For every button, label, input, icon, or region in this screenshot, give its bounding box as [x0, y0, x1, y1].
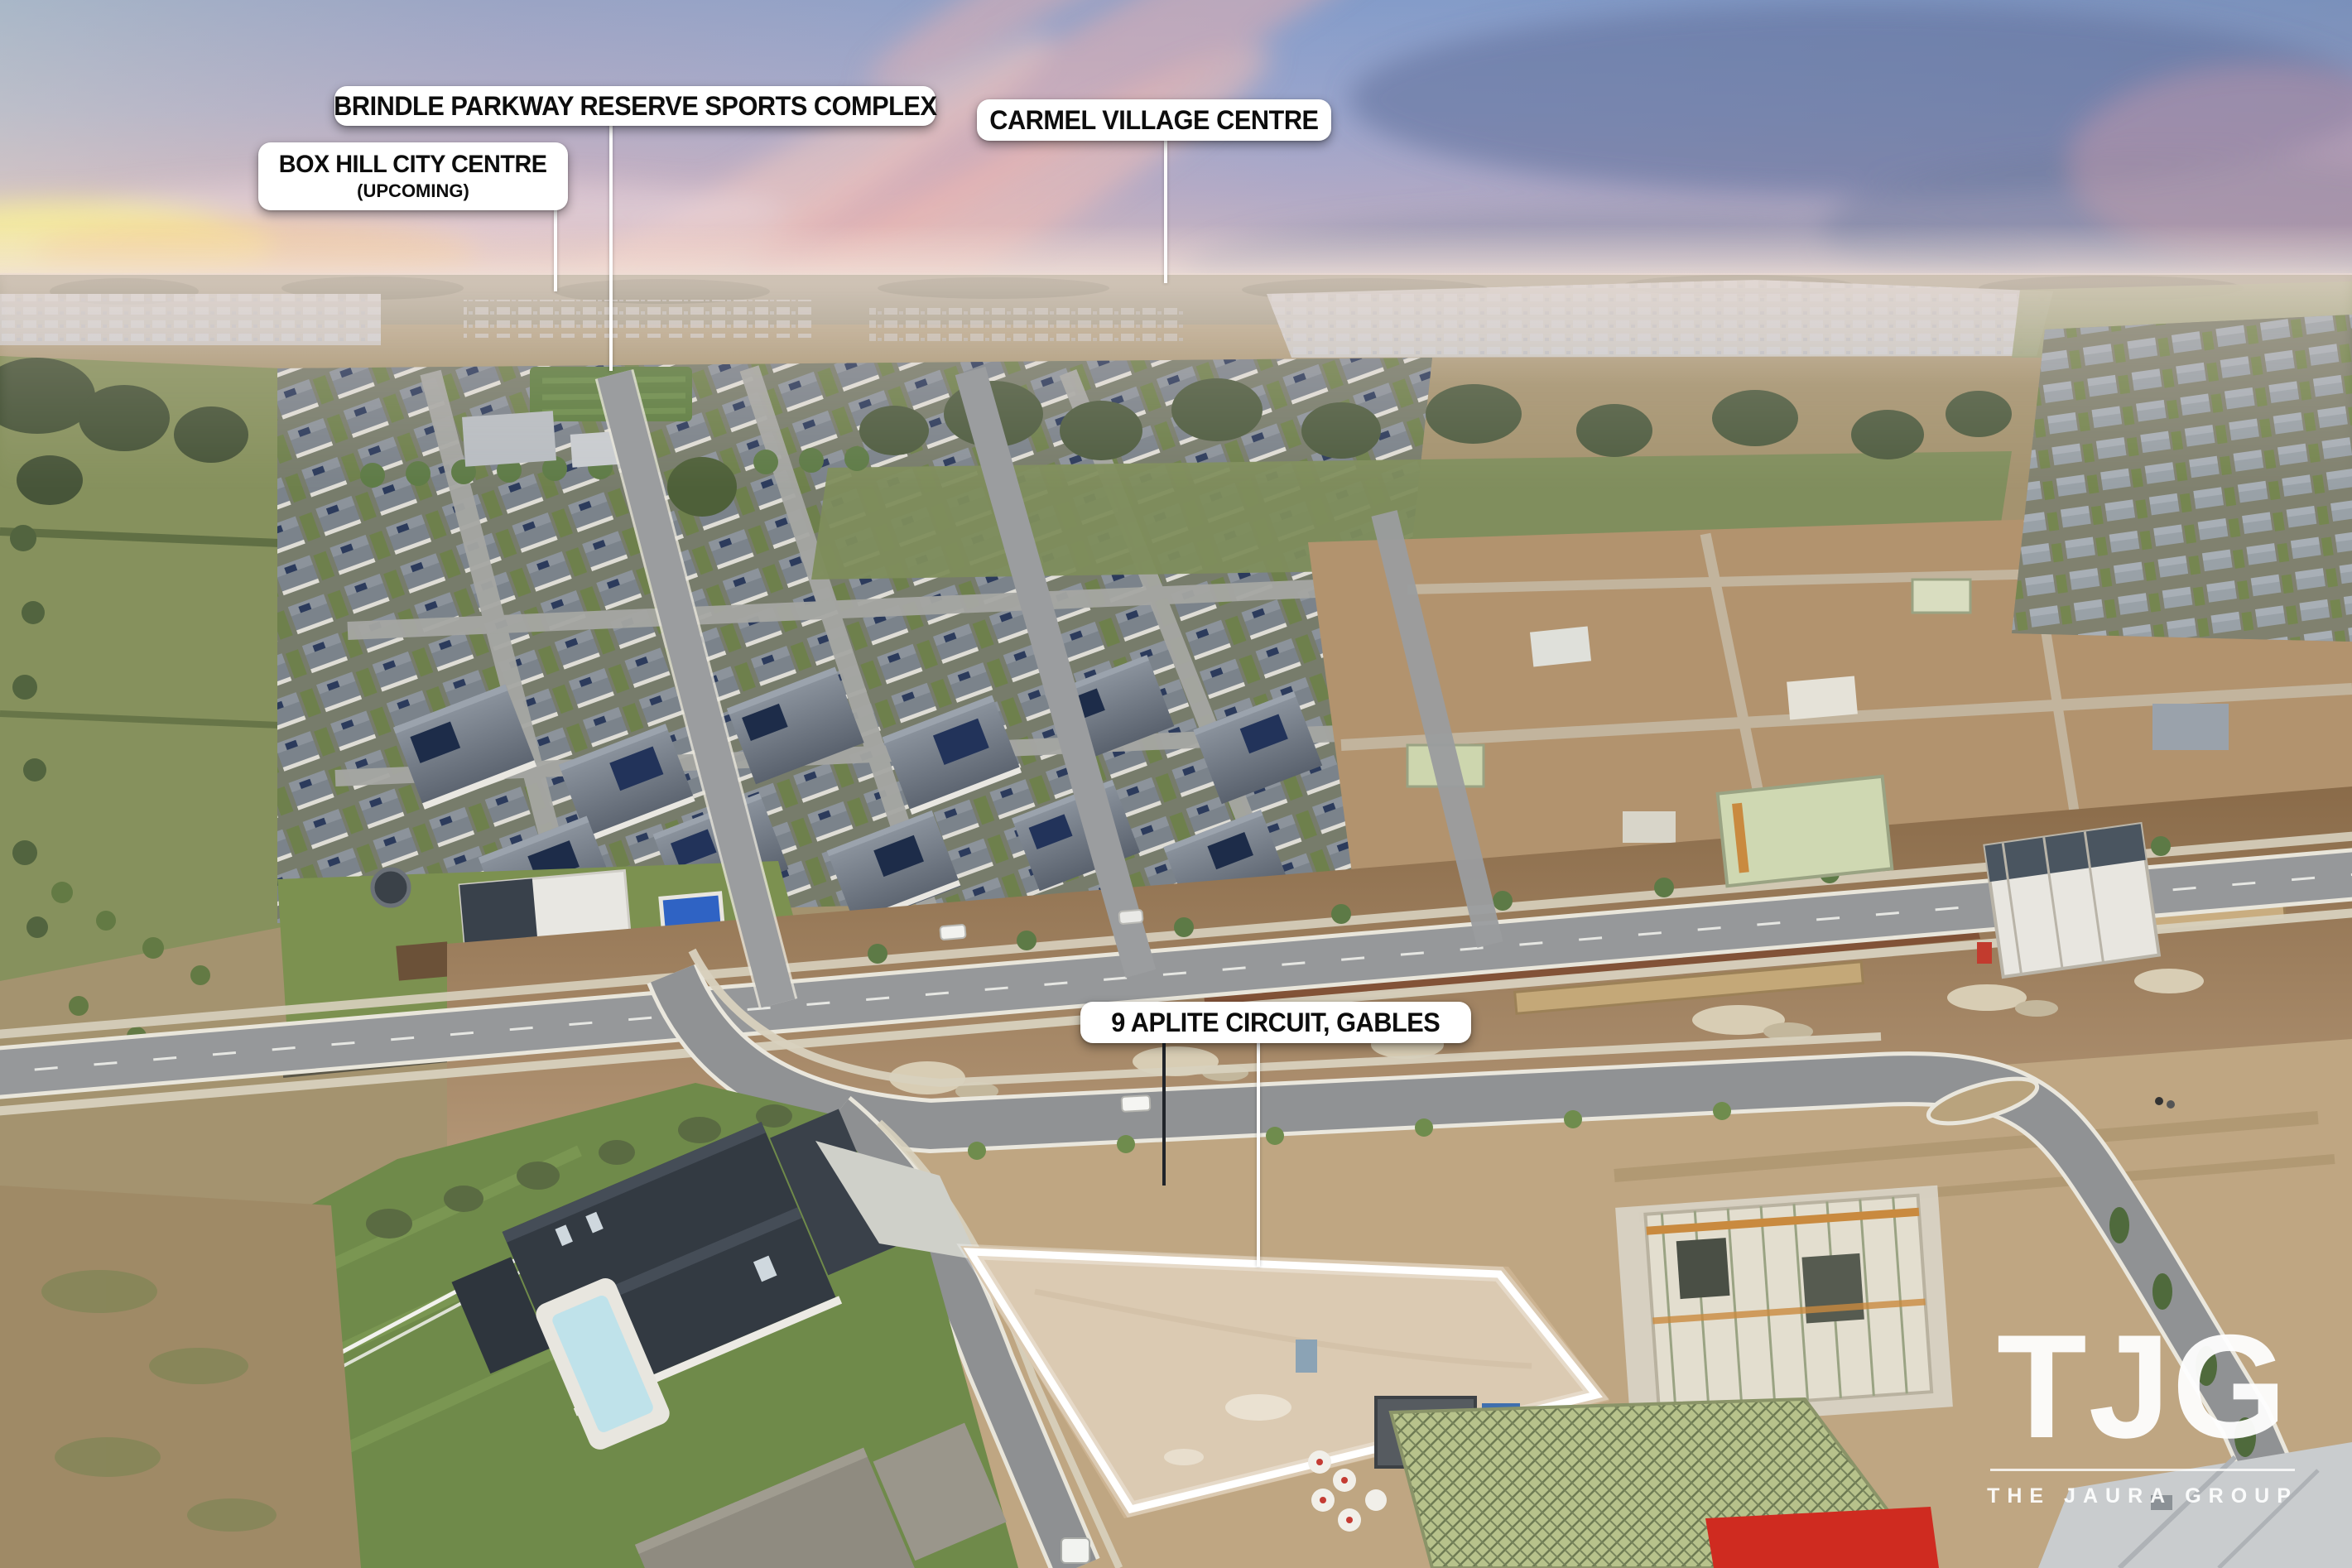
agency-watermark: TJG THE JAURA GROUP	[1985, 1313, 2300, 1508]
watermark-logo: TJG	[1985, 1313, 2300, 1460]
watermark-divider	[1990, 1469, 2295, 1471]
aerial-photo: BRINDLE PARKWAY RESERVE SPORTS COMPLEX B…	[0, 0, 2352, 1568]
callout-property-address: 9 APLITE CIRCUIT, GABLES	[1080, 1002, 1471, 1043]
leader-line-aplite	[1257, 1041, 1260, 1267]
leader-line-carmel	[1164, 139, 1167, 283]
leader-line-box-hill	[554, 209, 557, 291]
callout-text: 9 APLITE CIRCUIT, GABLES	[1112, 1008, 1441, 1038]
leader-line-brindle	[609, 124, 613, 371]
portaloo	[1296, 1340, 1317, 1373]
callout-box-hill-city-centre: BOX HILL CITY CENTRE (UPCOMING)	[258, 142, 568, 210]
watermark-name: THE JAURA GROUP	[1985, 1484, 2300, 1508]
callout-subtext: (UPCOMING)	[357, 180, 469, 202]
callout-carmel-village-centre: CARMEL VILLAGE CENTRE	[977, 99, 1331, 141]
callout-text: CARMEL VILLAGE CENTRE	[989, 105, 1318, 136]
callout-text: BOX HILL CITY CENTRE	[279, 151, 547, 179]
callout-text: BRINDLE PARKWAY RESERVE SPORTS COMPLEX	[334, 91, 936, 122]
callout-brindle-parkway-reserve: BRINDLE PARKWAY RESERVE SPORTS COMPLEX	[334, 86, 936, 126]
